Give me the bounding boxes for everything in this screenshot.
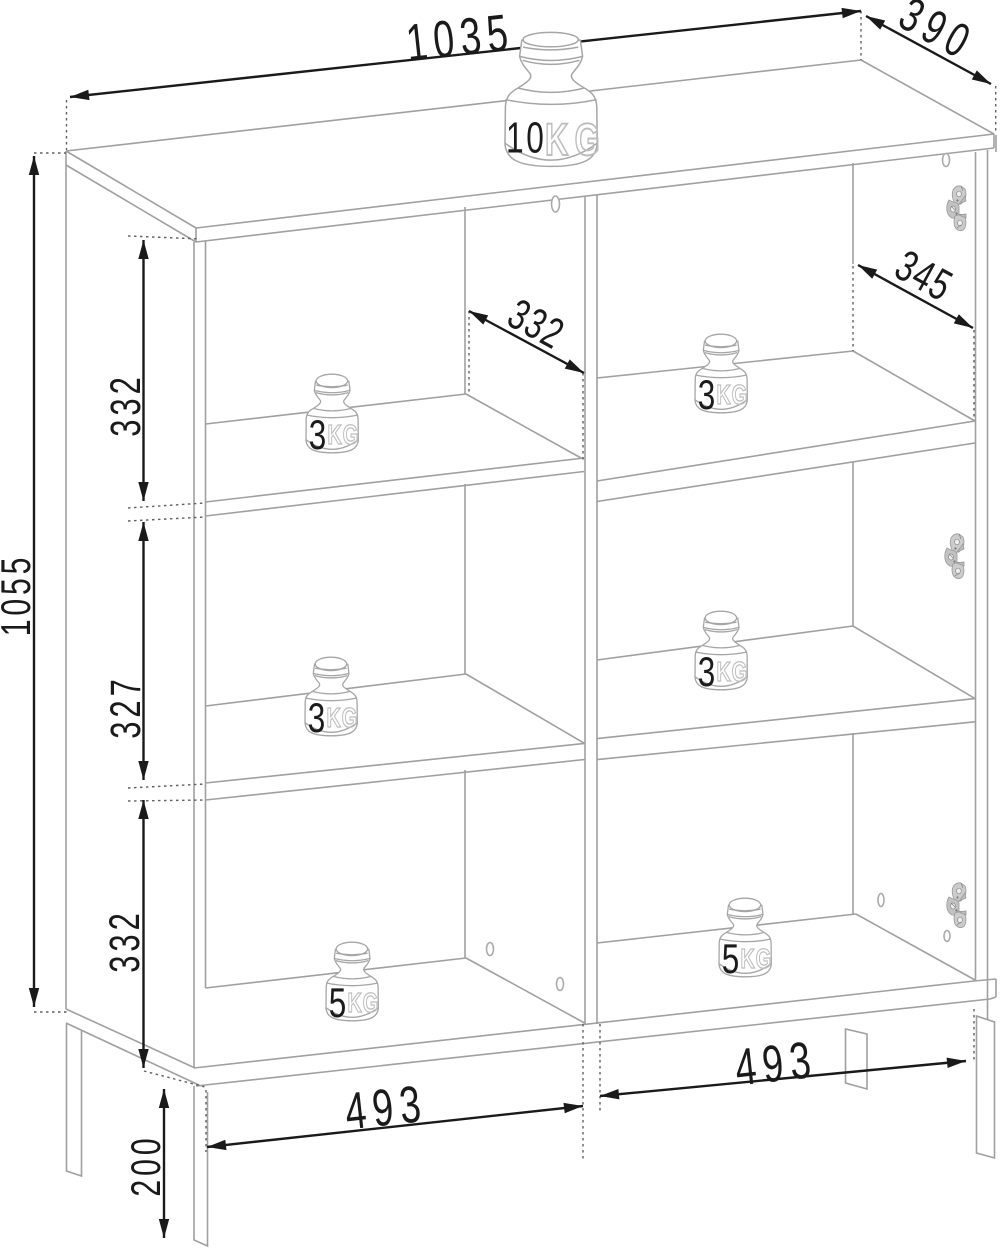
svg-text:KG: KG <box>545 116 606 165</box>
svg-text:5: 5 <box>329 979 347 1027</box>
svg-text:3: 3 <box>308 694 326 742</box>
svg-text:327: 327 <box>101 675 149 739</box>
svg-text:493: 493 <box>342 1074 430 1141</box>
svg-text:3: 3 <box>698 371 716 419</box>
svg-text:493: 493 <box>732 1030 820 1097</box>
svg-text:1055: 1055 <box>0 554 39 637</box>
svg-text:200: 200 <box>122 1134 169 1196</box>
svg-text:3: 3 <box>309 411 327 459</box>
svg-text:KG: KG <box>348 988 380 1019</box>
svg-text:KG: KG <box>741 944 773 975</box>
svg-text:KG: KG <box>327 703 359 734</box>
svg-text:332: 332 <box>100 909 148 973</box>
svg-text:KG: KG <box>328 420 360 451</box>
svg-text:10: 10 <box>506 113 547 162</box>
svg-text:1035: 1035 <box>403 2 516 72</box>
svg-text:332: 332 <box>101 373 149 437</box>
svg-text:KG: KG <box>717 380 749 411</box>
svg-text:KG: KG <box>717 657 749 688</box>
svg-text:5: 5 <box>722 935 740 983</box>
svg-text:3: 3 <box>698 648 716 696</box>
